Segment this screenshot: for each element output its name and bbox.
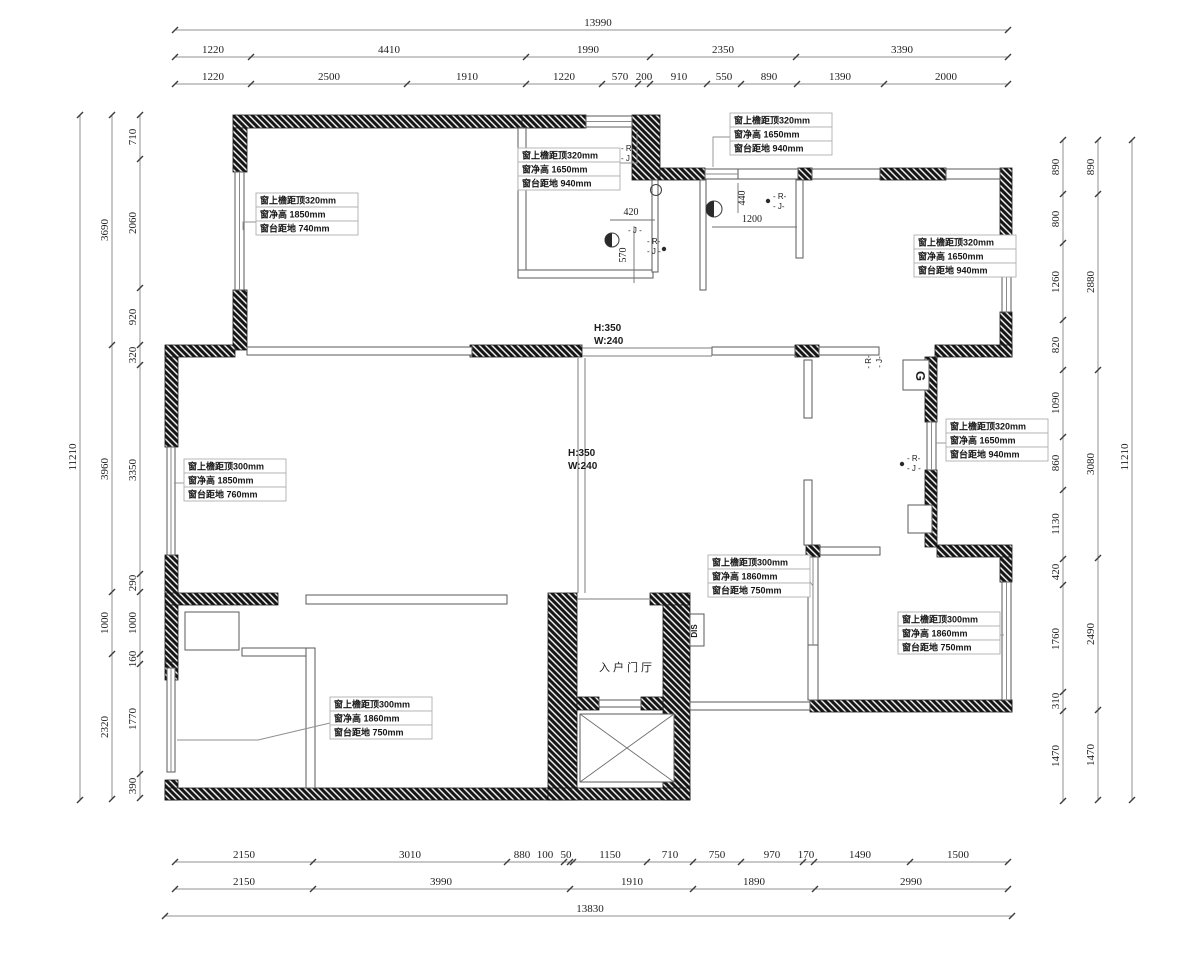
dim-text: 1910 xyxy=(621,876,644,888)
annotation-line: 窗台距地 760mm xyxy=(188,489,258,500)
wall-segment xyxy=(233,115,522,128)
rj-a-j: - J - xyxy=(621,154,635,163)
dim-top-overall: 13990 xyxy=(172,17,1011,33)
wall-segment xyxy=(650,593,690,605)
window-annotation-7: 窗上檐距顶300mm窗净高 1860mm窗台距地 750mm xyxy=(708,555,813,597)
wall-segment xyxy=(165,593,278,605)
annotation-line: 窗净高 1850mm xyxy=(260,209,326,220)
wall-segment xyxy=(522,115,586,128)
annotation-line: 窗净高 1650mm xyxy=(950,435,1016,446)
dim-text: 550 xyxy=(716,71,733,83)
window-annotation-8: 窗上檐距顶300mm窗净高 1860mm窗台距地 750mm xyxy=(898,612,1004,654)
partition-segment xyxy=(796,180,803,258)
window-annotation-6: 窗上檐距顶300mm窗净高 1850mm窗台距地 760mm xyxy=(174,459,286,501)
dim-left-minor: 7102060920320335029010001601770390 xyxy=(127,112,143,801)
partition-segment xyxy=(700,180,706,290)
dim-text: 570 xyxy=(612,71,629,83)
window xyxy=(167,447,175,555)
annotation-line: 窗台距地 740mm xyxy=(260,223,330,234)
dim-top-minor: 122025001910122057020091055089013902000 xyxy=(172,71,1011,87)
annotation-line: 窗净高 1860mm xyxy=(334,713,400,724)
dim-text: 1220 xyxy=(553,71,576,83)
wall-segment xyxy=(810,700,1012,712)
dim-text: 11210 xyxy=(1119,443,1131,471)
dim-bottom-minor: 2150301088010050115071075097017014901500 xyxy=(172,849,1011,865)
dim-text: 11210 xyxy=(67,443,79,471)
annotation-line: 窗净高 1650mm xyxy=(918,251,984,262)
dim-text: 890 xyxy=(1085,158,1097,175)
dim-text: 2990 xyxy=(900,876,923,888)
partition-segment xyxy=(690,702,810,710)
wall-segment xyxy=(577,697,599,710)
annotation-line: 窗上檐距顶300mm xyxy=(188,461,264,472)
window-annotation-4: 窗上檐距顶320mm窗净高 1650mm窗台距地 940mm xyxy=(914,235,1016,277)
partition-segment xyxy=(518,270,653,278)
dim-text: 2490 xyxy=(1085,623,1097,646)
rj-b-j: - J - xyxy=(647,247,661,256)
rj-dot-c xyxy=(766,199,770,203)
annotation-line: 窗净高 1650mm xyxy=(522,164,588,175)
dim-text: 50 xyxy=(561,849,573,861)
annotation-line: 窗台距地 940mm xyxy=(522,178,592,189)
partition-segment xyxy=(652,180,658,272)
dim-left-overall: 11210 xyxy=(67,112,83,803)
annotation-line: 窗台距地 940mm xyxy=(734,143,804,154)
dim-right-minor: 89080012608201090860113042017603101470 xyxy=(1050,137,1066,804)
annotation-line: 窗净高 1850mm xyxy=(188,475,254,486)
partition-segment xyxy=(820,547,880,555)
dim-text: 890 xyxy=(761,71,778,83)
dim-text: 13830 xyxy=(576,903,604,915)
dim-text: 200 xyxy=(636,71,653,83)
partition-segment xyxy=(185,612,239,650)
dim-text: 2060 xyxy=(127,212,139,235)
dim-text: 2320 xyxy=(99,716,111,739)
floor-plan-page: 1399012204410199023503390122025001910122… xyxy=(0,0,1200,960)
wall-segment xyxy=(165,788,562,800)
wall-segment xyxy=(548,788,690,800)
annotation-line: 窗上檐距顶300mm xyxy=(902,614,978,625)
dis-label: DIS xyxy=(690,624,699,638)
dim-text: 920 xyxy=(127,308,139,325)
wall-segment xyxy=(660,168,705,180)
dim-text: 3990 xyxy=(430,876,453,888)
dim-text: 1390 xyxy=(829,71,852,83)
rj-d-r: - R- xyxy=(907,454,921,463)
wall-segment xyxy=(937,545,1012,557)
window-annotation-5: 窗上檐距顶320mm窗净高 1650mm窗台距地 940mm xyxy=(936,419,1048,461)
dim-text: 710 xyxy=(127,128,139,145)
dim-text: 1220 xyxy=(202,44,225,56)
dim-text: 1770 xyxy=(127,708,139,731)
annotation-line: 窗上檐距顶300mm xyxy=(712,557,788,568)
beam2-h: H:350 xyxy=(568,448,596,459)
window xyxy=(705,169,738,179)
window xyxy=(586,116,632,127)
dim-text: 860 xyxy=(1050,454,1062,471)
annotation-line: 窗台距地 750mm xyxy=(902,642,972,653)
dim-text: 290 xyxy=(127,574,139,591)
rj-e-j: - J- xyxy=(875,356,884,368)
window xyxy=(235,172,244,290)
inner-dim-440: 440 xyxy=(737,191,748,206)
wall-segment xyxy=(1000,168,1012,242)
annotation-line: 窗上檐距顶320mm xyxy=(260,195,336,206)
wall-segment xyxy=(165,357,178,447)
dim-text: 1910 xyxy=(456,71,479,83)
dim-text: 1000 xyxy=(99,612,111,635)
gas-point-fill xyxy=(605,233,612,247)
rj-d-j: - J - xyxy=(907,464,921,473)
partition-segment xyxy=(247,347,472,355)
dim-text: 2500 xyxy=(318,71,341,83)
inner-dim-420: 420 xyxy=(624,207,639,218)
dim-text: 3690 xyxy=(99,219,111,242)
dim-text: 1260 xyxy=(1050,271,1062,294)
wall-segment xyxy=(880,168,946,180)
annotation-line: 窗上檐距顶300mm xyxy=(334,699,410,710)
annotation-line: 窗上檐距顶320mm xyxy=(950,421,1026,432)
dim-text: 170 xyxy=(798,849,815,861)
dim-right-overall: 11210 xyxy=(1119,137,1135,803)
wall-segment xyxy=(548,593,577,800)
dim-text: 1890 xyxy=(743,876,766,888)
annotation-line: 窗台距地 750mm xyxy=(334,727,404,738)
rj-dot-d xyxy=(900,462,904,466)
dim-text: 3390 xyxy=(891,44,914,56)
dim-bottom-overall: 13830 xyxy=(162,903,1015,919)
partition-segment xyxy=(946,169,1000,179)
elevator-shaft xyxy=(580,714,674,782)
dim-text: 320 xyxy=(127,346,139,363)
wall-segment xyxy=(1000,557,1012,582)
dim-text: 800 xyxy=(1050,210,1062,227)
dim-left-major: 3690396010002320 xyxy=(99,112,115,802)
annotation-line: 窗上檐距顶320mm xyxy=(918,237,994,248)
window-annotation-1: 窗上檐距顶320mm窗净高 1850mm窗台距地 740mm xyxy=(243,193,358,235)
wall-segment xyxy=(798,168,812,180)
gas-point2-fill xyxy=(706,201,714,217)
dim-top-major: 12204410199023503390 xyxy=(172,44,1011,60)
wall-segment xyxy=(935,345,1012,357)
dim-text: 2150 xyxy=(233,849,256,861)
wall-segment xyxy=(165,345,235,357)
dim-text: 1470 xyxy=(1050,745,1062,768)
dim-right-major: 8902880308024901470 xyxy=(1085,137,1101,803)
wall-segment xyxy=(641,697,663,710)
dim-text: 2150 xyxy=(233,876,256,888)
window-annotation-2: 窗上檐距顶320mm窗净高 1650mm窗台距地 940mm xyxy=(518,131,637,190)
dim-text: 4410 xyxy=(378,44,401,56)
dim-text: 1220 xyxy=(202,71,225,83)
rj-b-r: - R- xyxy=(647,237,661,246)
dim-text: 3350 xyxy=(127,459,139,482)
dim-text: 890 xyxy=(1050,158,1062,175)
annotation-line: 窗上檐距顶320mm xyxy=(522,150,598,161)
partition-segment xyxy=(804,480,812,545)
floor-plan-canvas: 1399012204410199023503390122025001910122… xyxy=(0,0,1200,960)
wall-segment xyxy=(632,115,660,180)
beam-lines xyxy=(577,348,712,599)
inner-dim-570: 570 xyxy=(618,248,629,263)
rj-c-r: - R- xyxy=(773,192,787,201)
partition-segment xyxy=(306,595,507,604)
dim-text: 3960 xyxy=(99,458,111,481)
annotation-line: 窗净高 1650mm xyxy=(734,129,800,140)
rj-e-r: - R- xyxy=(864,355,873,369)
wall-segment xyxy=(470,345,582,357)
dim-text: 1990 xyxy=(577,44,600,56)
partition-segment xyxy=(599,700,641,707)
partition-segment xyxy=(819,347,879,355)
dim-text: 3080 xyxy=(1085,453,1097,476)
annotation-line: 窗净高 1860mm xyxy=(712,571,778,582)
dim-text: 100 xyxy=(537,849,554,861)
dim-text: 390 xyxy=(127,777,139,794)
dim-text: 820 xyxy=(1050,336,1062,353)
dim-text: 1760 xyxy=(1050,628,1062,651)
partition-segment xyxy=(738,169,798,179)
partition-segment xyxy=(306,648,315,788)
dim-text: 750 xyxy=(709,849,726,861)
partition-segment xyxy=(712,347,795,355)
partition-segment xyxy=(242,648,306,656)
jlabel-420: - J - xyxy=(628,226,642,235)
partition-segment xyxy=(812,169,880,179)
rj-a-r: - R- xyxy=(621,144,635,153)
dim-bottom-major: 21503990191018902990 xyxy=(172,876,1011,892)
annotation-line: 窗净高 1860mm xyxy=(902,628,968,639)
inner-dim-1200: 1200 xyxy=(742,214,762,225)
window-annotations: 窗上檐距顶320mm窗净高 1850mm窗台距地 740mm窗上檐距顶320mm… xyxy=(174,113,1048,740)
annotation-line: 窗台距地 750mm xyxy=(712,585,782,596)
wall-segment xyxy=(233,290,247,350)
beam2-w: W:240 xyxy=(568,461,598,472)
wall-segment xyxy=(795,345,819,357)
dim-text: 2880 xyxy=(1085,271,1097,294)
water-heater-box xyxy=(908,505,932,533)
rj-dot-b xyxy=(662,247,666,251)
dim-text: 1000 xyxy=(127,612,139,635)
wall-segment xyxy=(165,555,178,597)
dim-text: 1130 xyxy=(1050,513,1062,535)
annotation-line: 窗上檐距顶320mm xyxy=(734,115,810,126)
gas-label: G xyxy=(913,371,928,381)
beam1-w: W:240 xyxy=(594,336,624,347)
beam1-h: H:350 xyxy=(594,323,622,334)
partition-segment xyxy=(808,645,818,700)
dim-text: 160 xyxy=(127,650,139,667)
dim-text: 1500 xyxy=(947,849,970,861)
dim-text: 1470 xyxy=(1085,744,1097,767)
dim-text: 910 xyxy=(671,71,688,83)
annotation-line: 窗台距地 940mm xyxy=(918,265,988,276)
dim-text: 710 xyxy=(662,849,679,861)
wall-segment xyxy=(233,128,247,172)
dim-text: 2350 xyxy=(712,44,735,56)
partition-segment xyxy=(804,360,812,418)
room-label-foyer: 入户门厅 xyxy=(599,660,655,674)
dim-text: 13990 xyxy=(584,17,612,29)
window xyxy=(927,422,936,470)
rj-c-j: - J- xyxy=(773,202,785,211)
dim-text: 880 xyxy=(514,849,531,861)
annotation-line: 窗台距地 940mm xyxy=(950,449,1020,460)
wall-segment xyxy=(165,605,178,665)
window xyxy=(167,668,175,772)
dim-text: 1490 xyxy=(849,849,872,861)
dim-text: 420 xyxy=(1050,563,1062,580)
window-annotation-3: 窗上檐距顶320mm窗净高 1650mm窗台距地 940mm xyxy=(713,113,832,167)
window-annotation-9: 窗上檐距顶300mm窗净高 1860mm窗台距地 750mm xyxy=(177,697,432,740)
dim-text: 1150 xyxy=(599,849,621,861)
dim-text: 1090 xyxy=(1050,392,1062,415)
dim-text: 970 xyxy=(764,849,781,861)
dim-text: 3010 xyxy=(399,849,422,861)
window xyxy=(1002,582,1011,700)
dim-text: 2000 xyxy=(935,71,958,83)
dim-text: 310 xyxy=(1050,692,1062,709)
